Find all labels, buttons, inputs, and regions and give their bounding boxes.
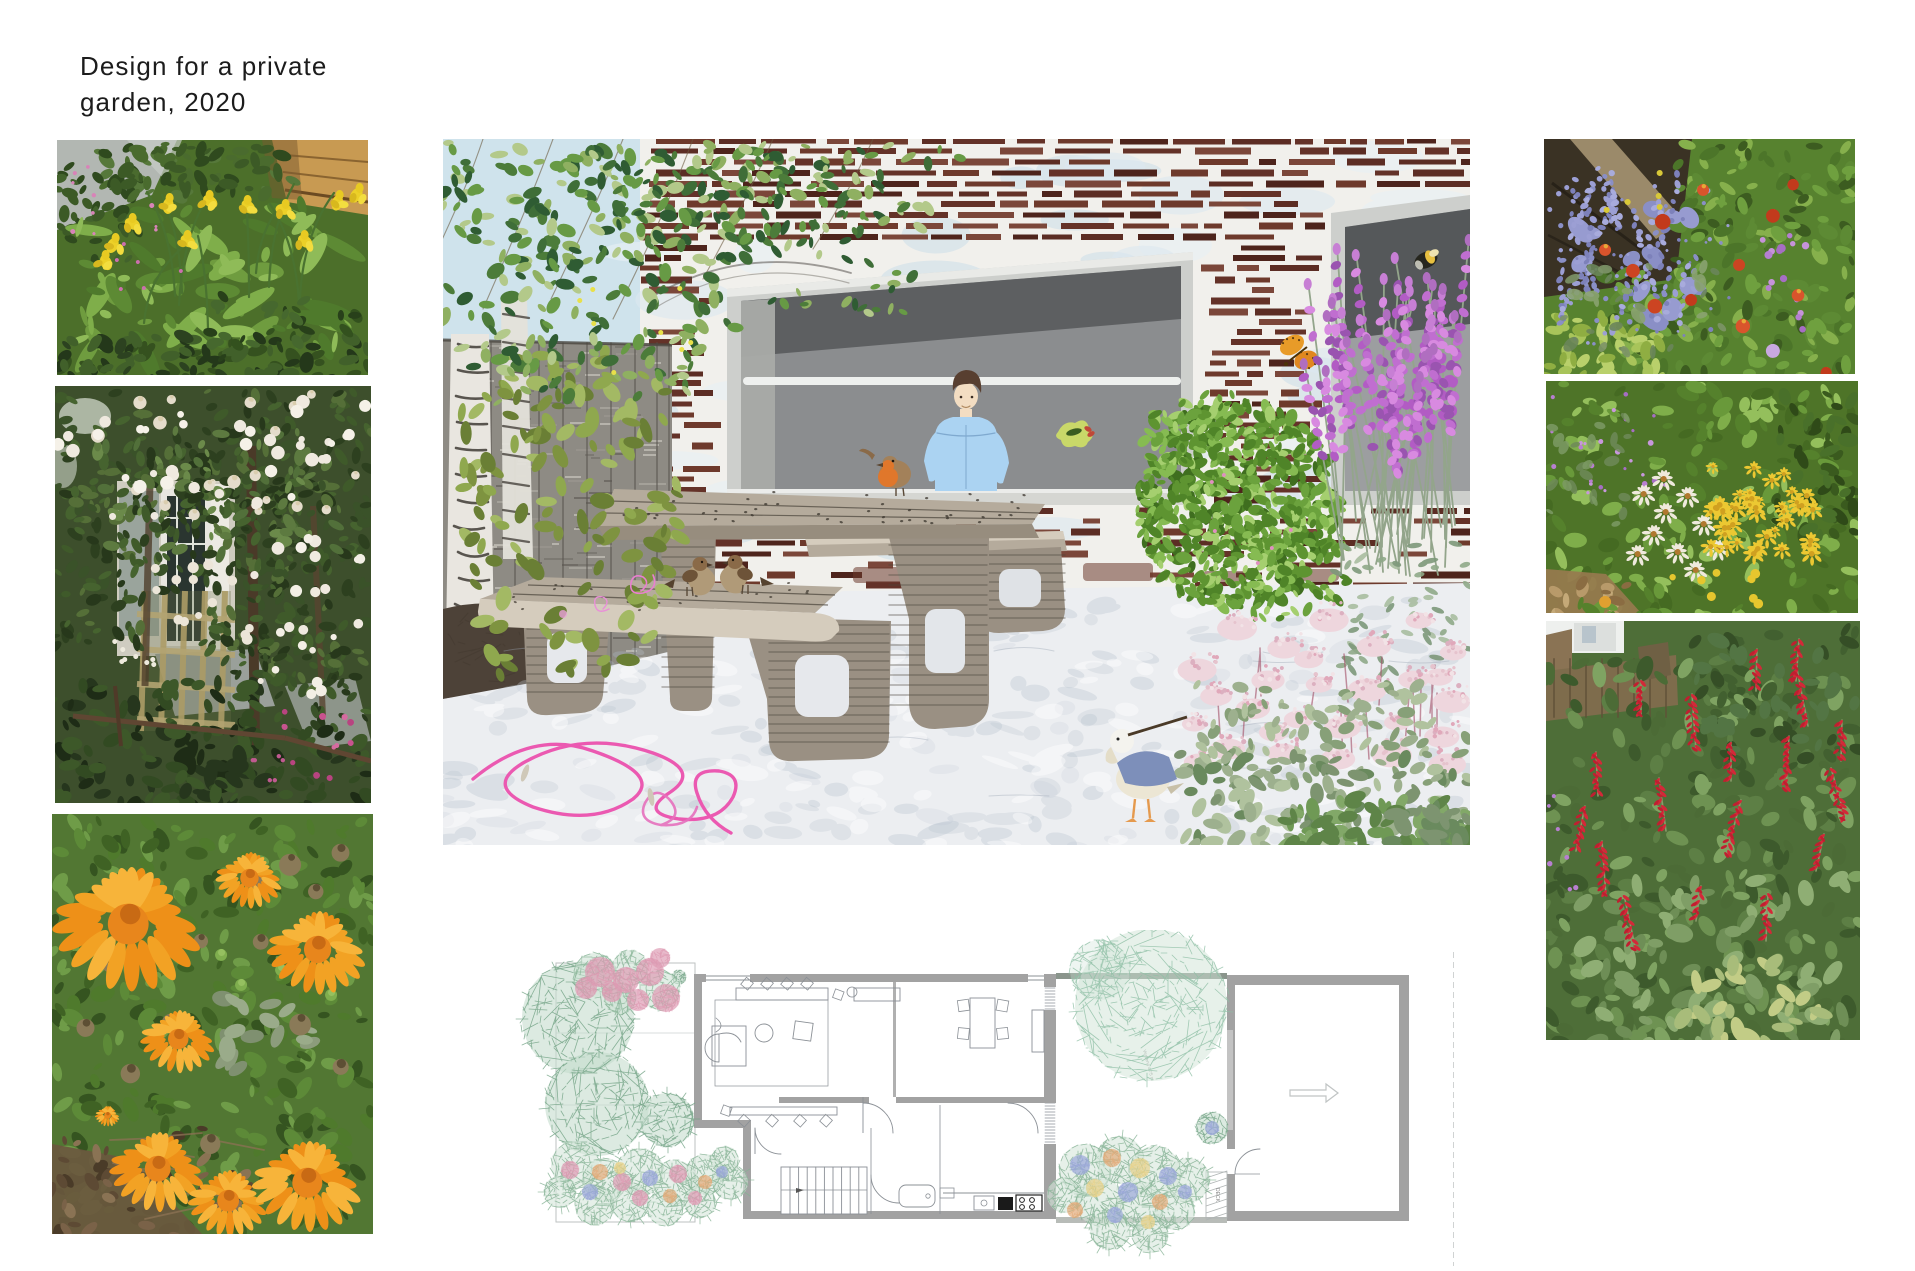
svg-text:DECK: DECK (1214, 1188, 1220, 1203)
